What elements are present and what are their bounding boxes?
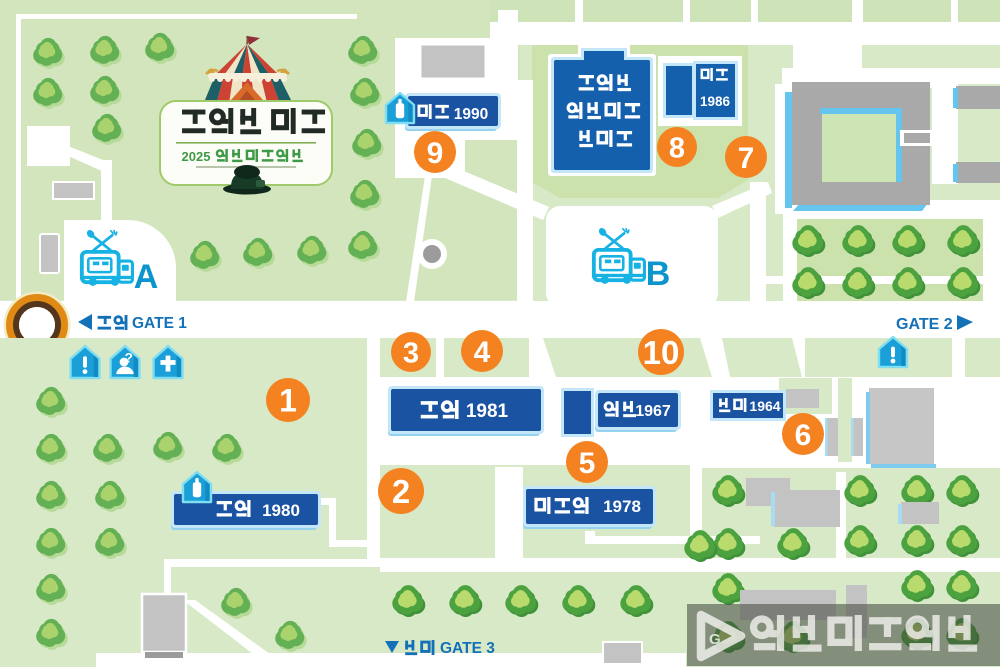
svg-text:2025: 2025 [182,149,211,164]
svg-text:A: A [134,258,159,296]
svg-text:GATE 1: GATE 1 [132,315,187,332]
svg-text:1: 1 [279,382,297,418]
svg-text:7: 7 [738,142,755,175]
svg-text:1986: 1986 [700,94,731,109]
svg-text:1980: 1980 [262,501,300,520]
svg-text:?: ? [125,351,133,366]
svg-text:GATE 3: GATE 3 [440,640,495,657]
svg-text:1978: 1978 [603,497,641,516]
svg-text:1981: 1981 [466,401,509,422]
svg-text:2: 2 [392,473,410,510]
svg-text:10: 10 [643,334,680,371]
svg-text:1990: 1990 [454,106,488,123]
svg-text:GATE 2: GATE 2 [896,316,953,333]
svg-text:8: 8 [669,132,685,164]
svg-text:G: G [709,631,721,648]
svg-text:5: 5 [579,447,596,480]
svg-text:9: 9 [427,137,444,170]
svg-text:1964: 1964 [749,398,780,414]
svg-text:4: 4 [474,336,491,369]
svg-text:B: B [646,255,671,293]
svg-text:3: 3 [403,337,419,369]
svg-text:1967: 1967 [635,403,671,420]
svg-text:6: 6 [795,419,812,452]
